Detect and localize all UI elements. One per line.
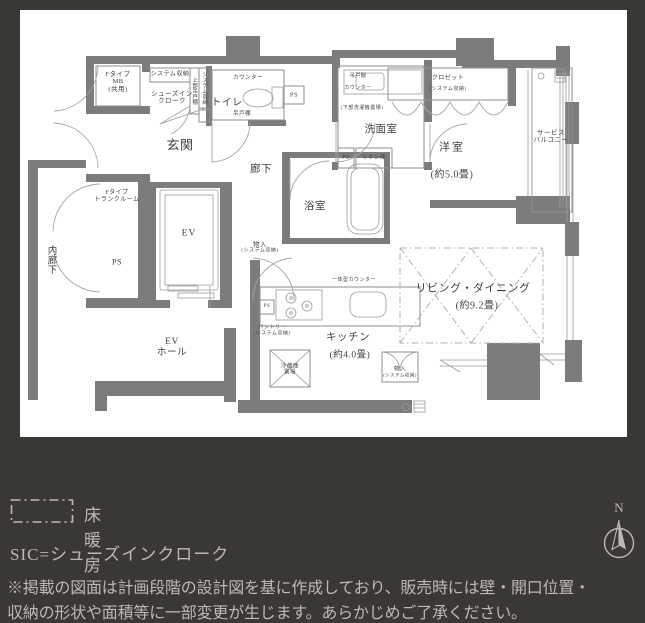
label-toilet-counter: カウンター — [233, 75, 263, 81]
label-system-storage-vertical: システム収納 — [201, 72, 207, 105]
compass-n-label: N — [614, 500, 623, 516]
label-ev-hall: EVホール — [157, 337, 187, 359]
label-ps-1: PS — [290, 91, 298, 98]
label-wash-counter: カウンター — [344, 86, 372, 92]
label-closet: クロゼット — [432, 76, 465, 83]
floor-heating-swatch — [10, 498, 74, 524]
label-shoes-in-cloak: シューズインクローク — [151, 91, 193, 106]
label-kitchen-size: (約4.0畳) — [330, 351, 371, 362]
label-bedroom-size: (約5.0畳) — [431, 169, 474, 181]
page-background: FタイプMB(共用) システム収納 シューズインクローク 上部吊戸棚 システム収… — [0, 0, 645, 621]
label-genkan: 玄関 — [166, 139, 193, 154]
floorplan-panel: FタイプMB(共用) システム収納 シューズインクローク 上部吊戸棚 システム収… — [20, 10, 627, 437]
label-fridge: 冷蔵庫置場 — [281, 364, 299, 377]
label-bath: 浴室 — [304, 201, 326, 213]
label-ps-2: PS — [342, 155, 350, 162]
label-upper-shelf: 上部吊戸棚 — [191, 77, 197, 105]
sic-definition: SIC=シューズインクローク — [10, 540, 229, 565]
disclaimer-line-1: ※掲載の図面は計画段階の設計図を基に作成しており、販売時には壁・開口位置・ — [7, 574, 645, 598]
label-monoire-hall: 物入(システム収納) — [241, 241, 278, 254]
label-hallway: 廊下 — [250, 164, 272, 176]
label-bedroom: 洋室 — [439, 142, 465, 155]
label-washer-place: (下部洗濯機置場) — [341, 106, 384, 112]
label-washroom: 洗面室 — [365, 124, 398, 136]
label-service-balcony: サービスバルコニー — [534, 130, 569, 145]
compass: N — [596, 500, 642, 568]
label-inner-corridor: 内廊下 — [45, 246, 56, 275]
label-kitchen: キッチン — [326, 332, 370, 344]
label-integrated-counter: 一体型カウンター — [332, 278, 376, 284]
label-wash-hanging: 吊戸棚 — [350, 74, 367, 80]
label-ps-4: PS — [264, 304, 271, 310]
label-pantry: パントリー(システム収納) — [253, 325, 290, 337]
label-system-storage: システム収納 — [151, 72, 190, 79]
label-trunk-room: Fタイプトランクルーム — [94, 190, 139, 204]
label-mb: FタイプMB(共用) — [105, 71, 130, 93]
label-linen: リネン庫 — [362, 155, 386, 161]
label-living-size: (約9.2畳) — [456, 300, 499, 312]
label-toilet: トイレ — [211, 97, 243, 109]
label-monoire-kitchen: 物入(システム収納) — [383, 366, 417, 377]
label-closet-sub: (システム収納) — [429, 87, 466, 93]
label-ps-3: PS — [112, 257, 122, 266]
floor-heating-legend: 床暖房 — [10, 498, 74, 526]
label-toilet-hanging: 吊戸棚 — [233, 111, 251, 117]
floor-heating-area — [400, 248, 543, 343]
label-living: リビング・ダイニング — [416, 283, 531, 296]
disclaimer-line-2: 収納の形状や面積等に一部変更が生じます。あらかじめご了承ください。 — [7, 599, 645, 623]
label-ev: EV — [182, 229, 197, 240]
